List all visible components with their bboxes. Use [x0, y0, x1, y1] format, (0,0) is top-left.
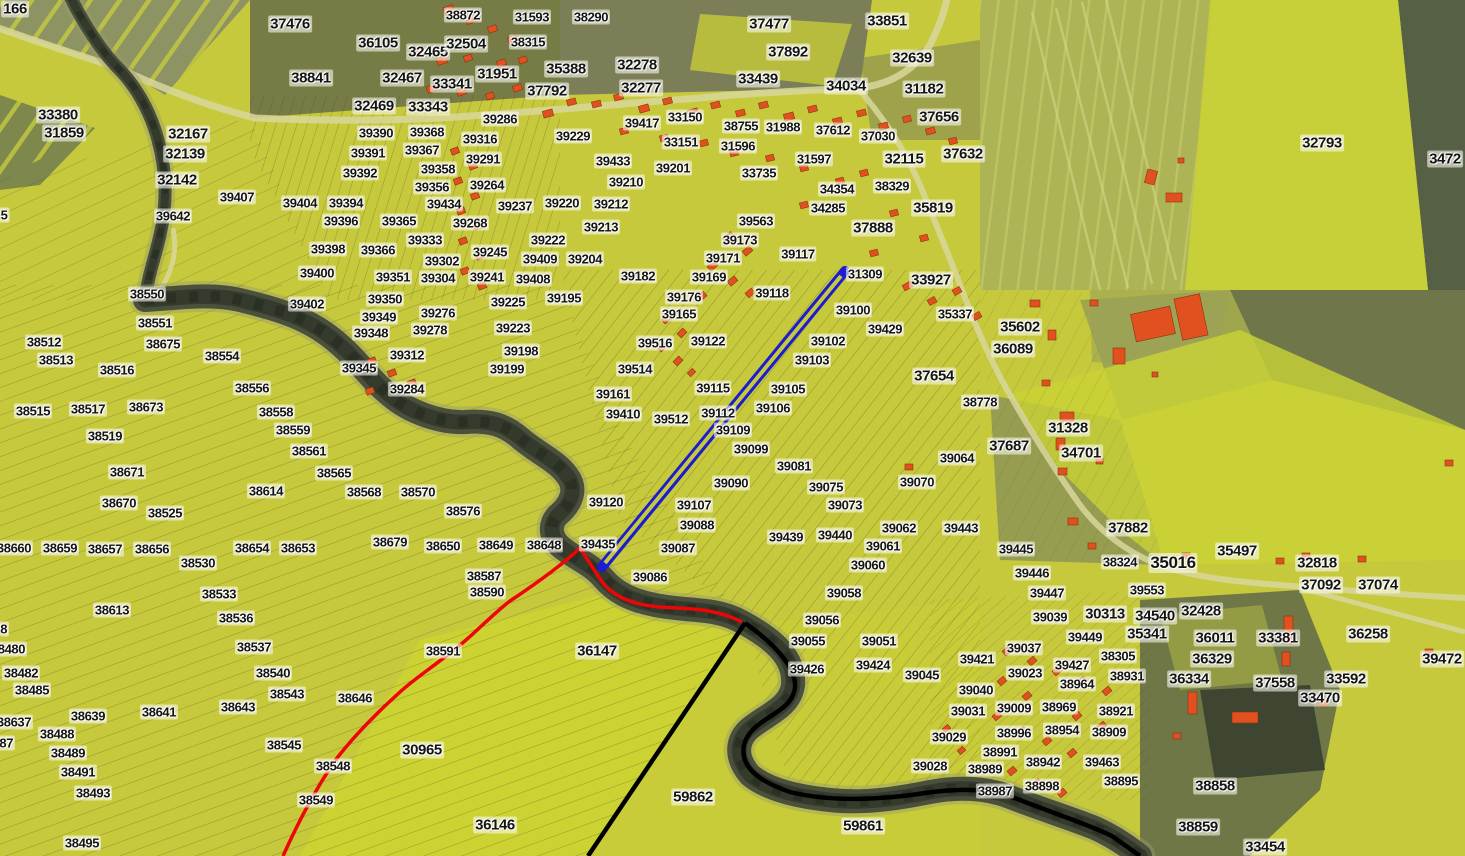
building	[1030, 300, 1040, 307]
map-canvas[interactable]: 1663747638872315933829036105324653250438…	[0, 0, 1465, 856]
building	[1056, 438, 1065, 450]
building	[1058, 468, 1067, 475]
building	[1284, 616, 1293, 644]
building	[1173, 733, 1181, 739]
building	[1358, 556, 1366, 562]
building	[1276, 558, 1284, 564]
building	[905, 464, 913, 470]
field-stripes	[980, 0, 1210, 290]
terrain-patch	[1185, 0, 1428, 290]
building	[1282, 652, 1290, 666]
building	[1068, 518, 1078, 525]
building	[1042, 380, 1050, 386]
building	[1232, 712, 1258, 723]
building	[1318, 698, 1328, 706]
building	[1060, 412, 1074, 421]
building	[1182, 553, 1190, 559]
parcel-hatch	[930, 590, 1150, 800]
building	[1152, 372, 1158, 377]
building	[1090, 300, 1098, 306]
terrain-patch	[1200, 685, 1325, 780]
building	[1088, 543, 1096, 549]
building	[1113, 348, 1125, 364]
map-layers	[0, 0, 1465, 856]
building	[1445, 460, 1453, 466]
building	[1096, 458, 1103, 464]
building	[1048, 330, 1056, 340]
building	[1178, 158, 1184, 163]
building	[1425, 649, 1433, 655]
building	[1188, 692, 1197, 714]
building	[1302, 553, 1310, 559]
terrain-patch	[1160, 605, 1282, 690]
building	[1166, 193, 1182, 202]
